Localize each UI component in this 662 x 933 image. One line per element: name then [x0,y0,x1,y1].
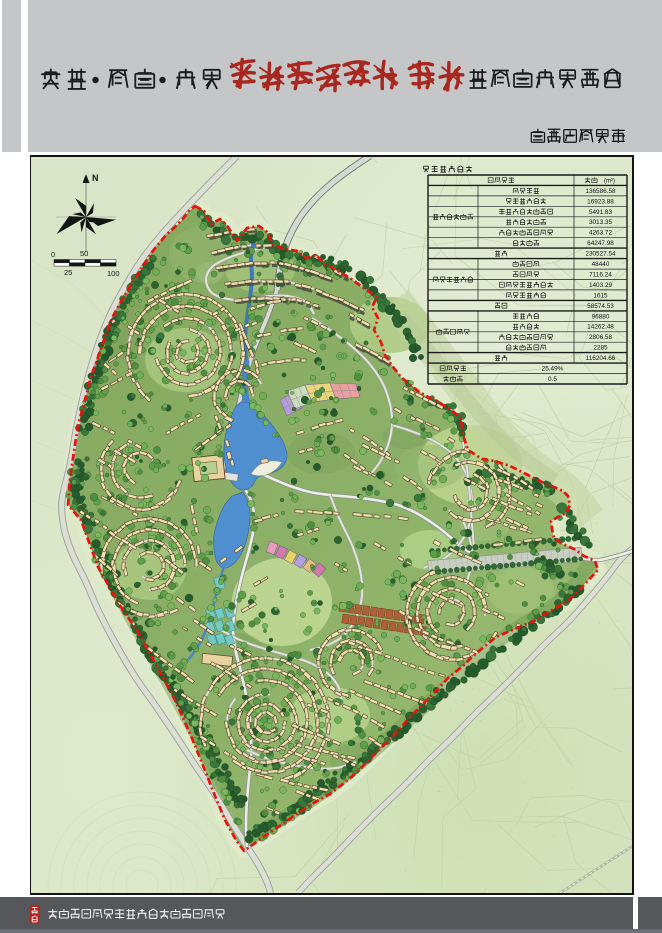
svg-text:136586.58: 136586.58 [585,188,616,195]
svg-text:N: N [92,173,99,183]
svg-text:0: 0 [51,250,55,259]
svg-text:100: 100 [107,269,120,278]
svg-text:25: 25 [64,268,72,277]
svg-text:116204.66: 116204.66 [586,355,616,362]
svg-text:48440: 48440 [592,261,610,268]
svg-text:3013.35: 3013.35 [589,219,613,226]
svg-text:5491.83: 5491.83 [589,209,613,216]
svg-text:64247.98: 64247.98 [587,240,614,247]
svg-text:25.49%: 25.49% [542,366,564,373]
svg-text:16923.88: 16923.88 [587,198,614,205]
svg-text:50: 50 [80,249,88,258]
svg-text:230527.54: 230527.54 [585,251,616,258]
svg-text:1403.29: 1403.29 [589,282,613,289]
svg-text:2285: 2285 [593,345,608,352]
svg-text:14262.48: 14262.48 [587,324,614,331]
svg-text:4263.72: 4263.72 [589,230,613,237]
svg-text:2806.58: 2806.58 [589,334,613,341]
svg-text:1615: 1615 [593,292,608,299]
svg-text:96880: 96880 [592,313,610,320]
svg-text:58574.53: 58574.53 [587,303,614,310]
svg-text:(m²): (m²) [604,178,615,184]
svg-text:0.5: 0.5 [548,376,557,383]
svg-text:7116.24: 7116.24 [589,272,612,279]
